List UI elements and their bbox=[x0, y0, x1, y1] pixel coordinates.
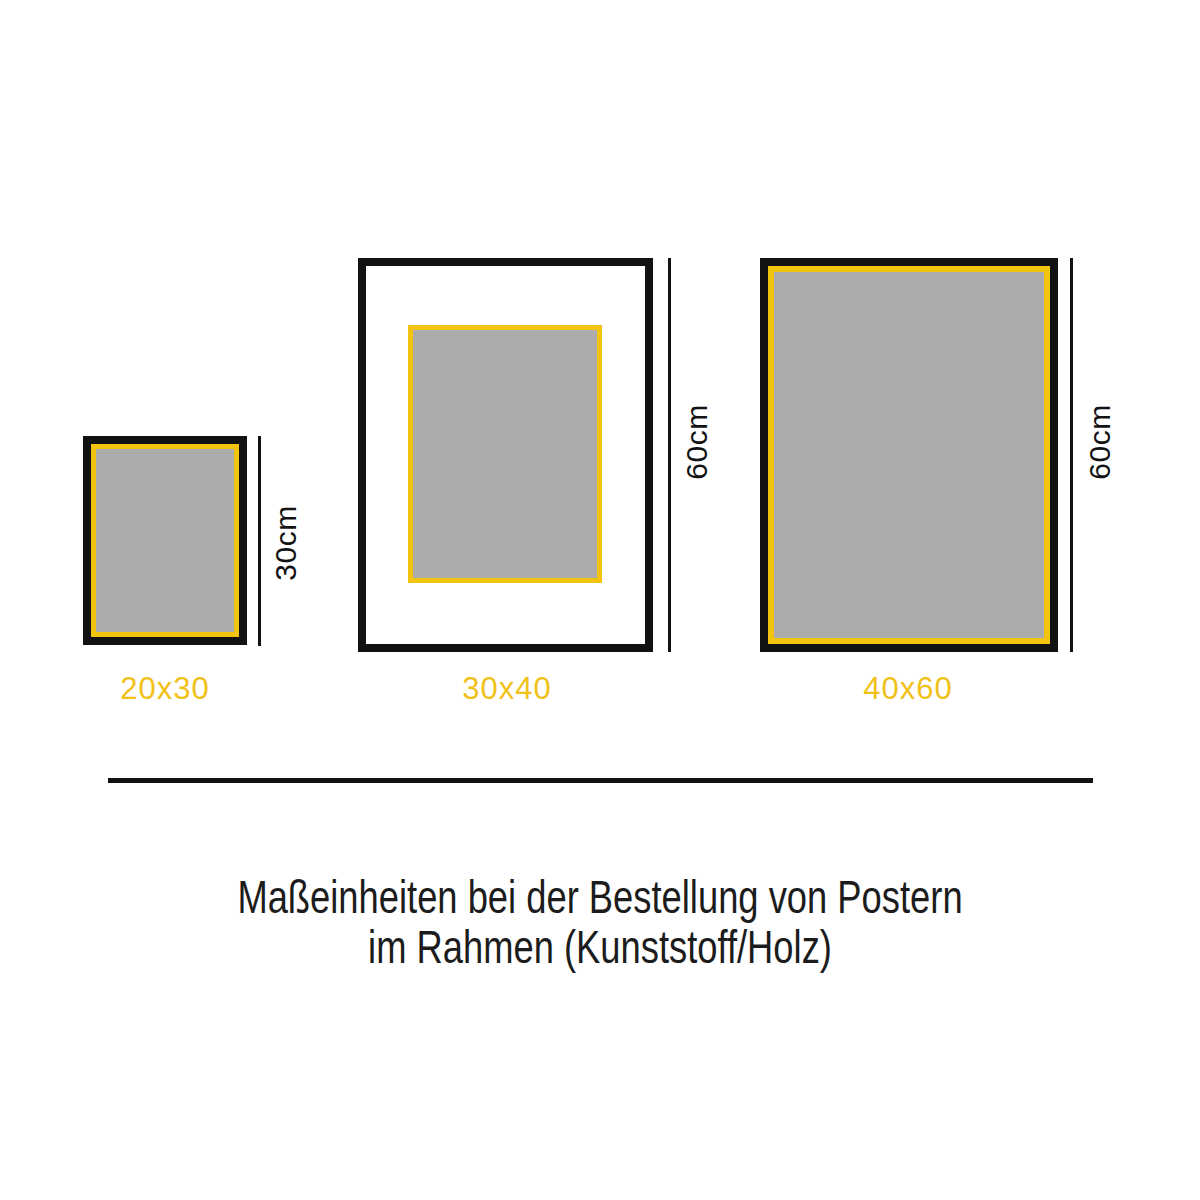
dimension-label-30x40: 60cm bbox=[680, 404, 714, 479]
poster-size-diagram: 30cm 20x30 60cm 30x40 60cm 40x60 Maßeinh… bbox=[0, 0, 1200, 1200]
poster-30x40 bbox=[408, 325, 602, 583]
dimension-line-20x30 bbox=[258, 436, 261, 646]
size-label-40x60: 40x60 bbox=[863, 671, 952, 707]
dimension-label-20x30: 30cm bbox=[269, 505, 303, 580]
dimension-line-40x60 bbox=[1070, 258, 1073, 652]
frame-40x60 bbox=[760, 258, 1058, 652]
poster-40x60 bbox=[768, 266, 1050, 644]
size-label-30x40: 30x40 bbox=[462, 671, 551, 707]
divider-line bbox=[108, 778, 1093, 783]
dimension-line-30x40 bbox=[668, 258, 671, 652]
caption-line-1: Maßeinheiten bei der Bestellung von Post… bbox=[126, 872, 1074, 922]
frame-30x40 bbox=[358, 258, 653, 652]
size-label-20x30: 20x30 bbox=[120, 671, 209, 707]
frame-20x30 bbox=[83, 436, 247, 645]
dimension-label-40x60: 60cm bbox=[1083, 404, 1117, 479]
caption-line-2: im Rahmen (Kunststoff/Holz) bbox=[126, 922, 1074, 972]
poster-20x30 bbox=[91, 444, 239, 637]
caption: Maßeinheiten bei der Bestellung von Post… bbox=[126, 872, 1074, 972]
